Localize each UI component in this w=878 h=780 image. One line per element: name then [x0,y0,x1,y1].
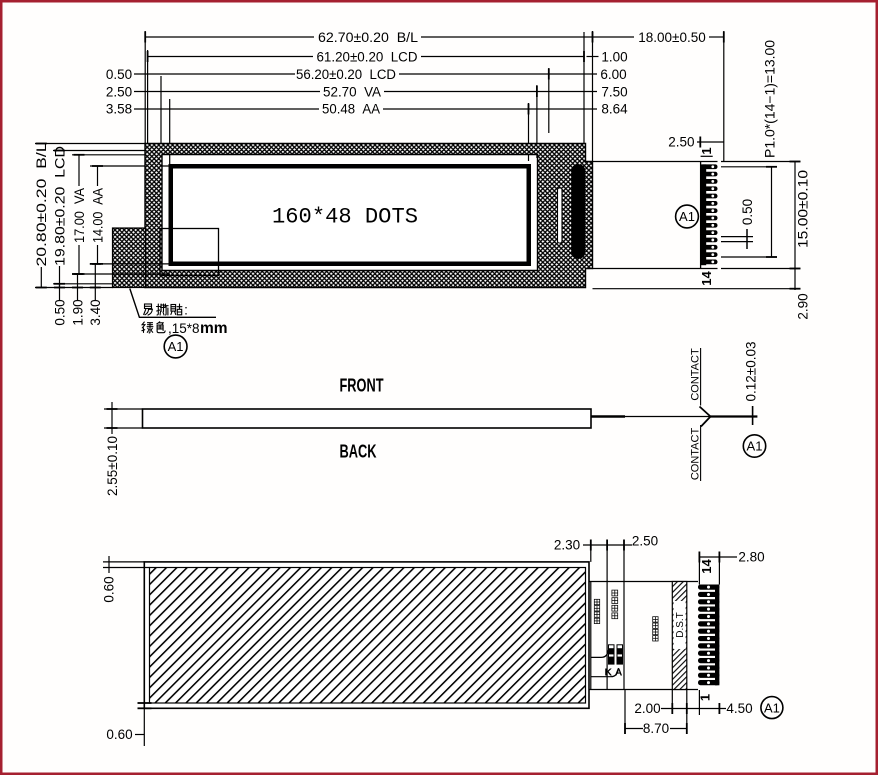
svg-text:2.55±0.10: 2.55±0.10 [105,436,120,496]
svg-text:19.80±0.20 LCD: 19.80±0.20 LCD [52,146,67,266]
svg-text:8.70: 8.70 [643,721,669,736]
svg-text:56.20±0.20 LCD: 56.20±0.20 LCD [296,67,396,82]
svg-text:2.80: 2.80 [738,550,764,565]
svg-text:0.60: 0.60 [106,727,132,742]
svg-text:2.50: 2.50 [632,534,658,549]
svg-text:50.48 AA: 50.48 AA [322,102,380,117]
svg-text:160*48 DOTS: 160*48 DOTS [272,205,418,230]
svg-text:3.40: 3.40 [88,299,103,325]
svg-text:0.50: 0.50 [740,199,755,225]
svg-text:7.50: 7.50 [601,84,627,99]
svg-text:1.90: 1.90 [70,299,85,325]
svg-text:0.12±0.03: 0.12±0.03 [743,342,758,402]
svg-text:14: 14 [699,271,714,286]
svg-text:2.90: 2.90 [795,293,810,319]
svg-text:A1: A1 [168,339,184,354]
svg-text::: : [184,303,188,318]
svg-text:2.30: 2.30 [554,537,580,552]
svg-text:BACK: BACK [340,442,377,462]
svg-text:14: 14 [699,559,714,574]
svg-text:17.00 VA: 17.00 VA [72,188,87,243]
svg-text:3.58: 3.58 [106,102,132,117]
svg-text:2.50: 2.50 [106,84,132,99]
svg-text:61.20±0.20 LCD: 61.20±0.20 LCD [317,49,418,64]
svg-text:0.50: 0.50 [106,67,132,82]
svg-text:D.S.T: D.S.T [675,612,686,638]
svg-text:62.70±0.20 B/L: 62.70±0.20 B/L [318,30,419,45]
svg-text:14.00 AA: 14.00 AA [90,188,105,243]
svg-text:2.00: 2.00 [634,701,660,716]
svg-text:0.50: 0.50 [52,299,67,325]
svg-text:FRONT: FRONT [340,376,384,396]
svg-text:20.80±0.20 B/L: 20.80±0.20 B/L [34,142,49,267]
svg-text:1: 1 [699,147,714,154]
svg-text:,15*8: ,15*8 [168,321,200,336]
svg-text:CONTACT: CONTACT [690,428,702,481]
svg-text:18.00±0.50: 18.00±0.50 [638,30,705,45]
svg-text:A1: A1 [679,209,695,224]
svg-text:P1.0*(14−1)=13.00: P1.0*(14−1)=13.00 [762,40,777,158]
svg-text:A1: A1 [747,439,763,454]
svg-text:CONTACT: CONTACT [690,348,702,401]
svg-text:6.00: 6.00 [600,67,626,82]
svg-text:2.50: 2.50 [668,135,694,150]
svg-text:4.50: 4.50 [726,701,752,716]
svg-text:A1: A1 [764,700,780,715]
svg-text:52.70 VA: 52.70 VA [323,84,381,99]
svg-text:1.00: 1.00 [601,49,627,64]
svg-text:8.64: 8.64 [601,102,628,117]
svg-text:mm: mm [200,320,228,337]
svg-text:0.60: 0.60 [101,576,116,602]
svg-text:15.00±0.10: 15.00±0.10 [795,170,810,248]
